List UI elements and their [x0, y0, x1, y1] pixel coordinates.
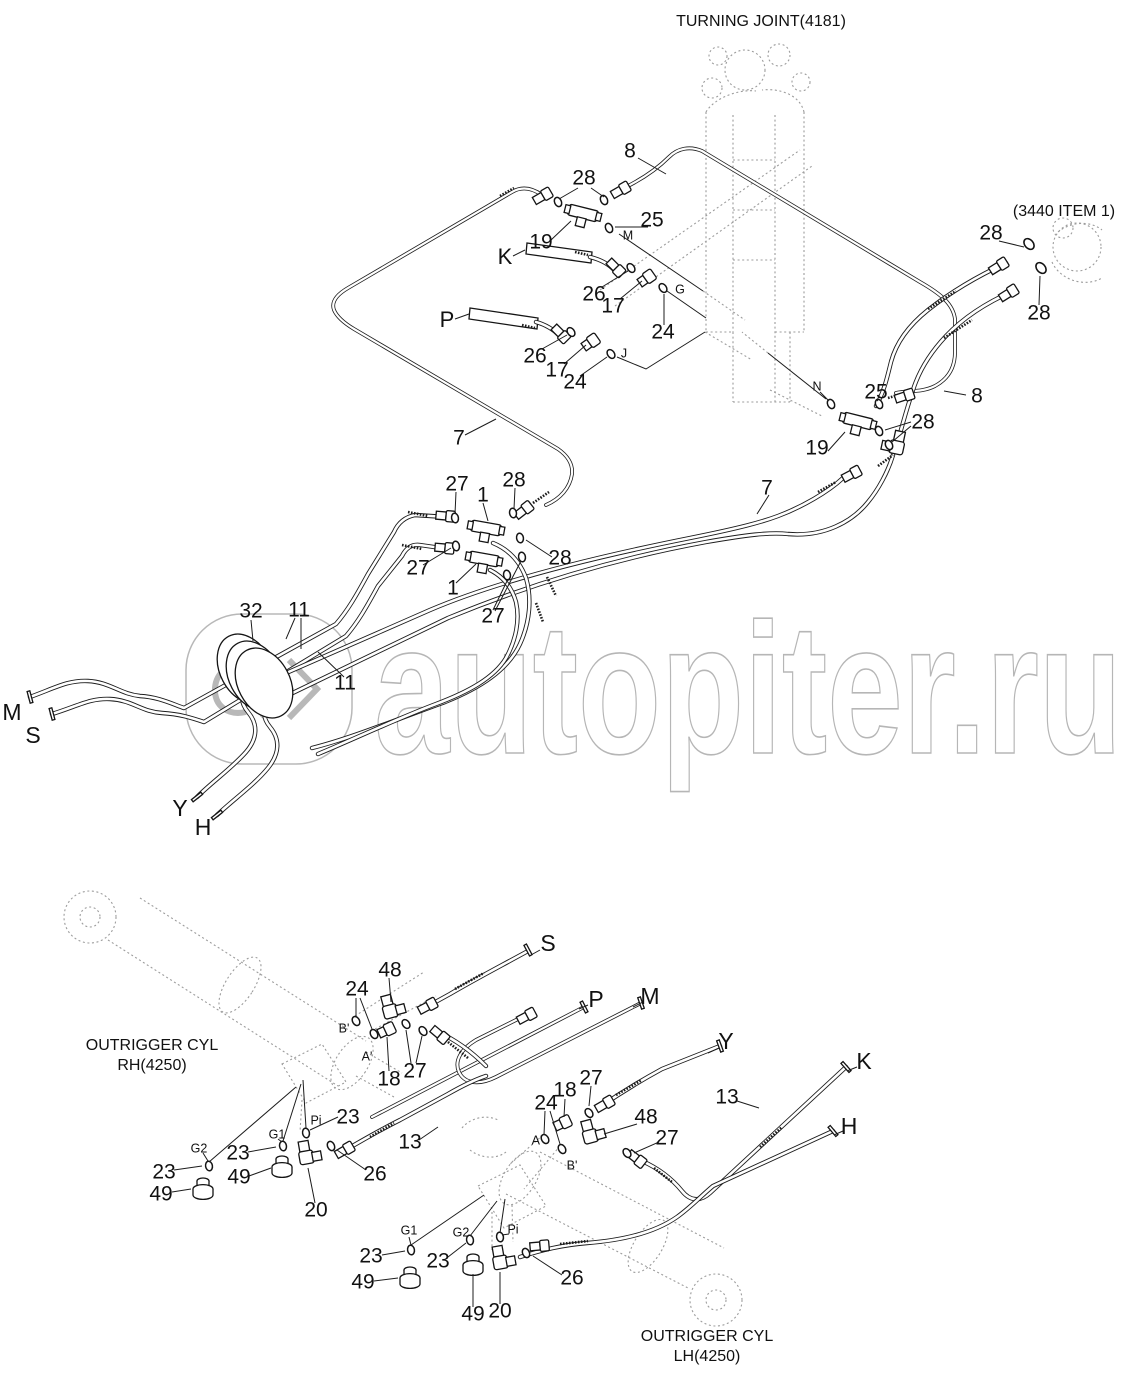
- part-number-label: 32: [239, 600, 262, 623]
- part-number-label: 27: [481, 605, 504, 628]
- part-number-label: 27: [445, 473, 468, 496]
- part-number-label: 7: [761, 477, 773, 500]
- part-number-label: 48: [378, 959, 401, 982]
- port-letter-label: J: [621, 346, 627, 360]
- part-number-label: 8: [624, 140, 636, 163]
- hydraulic-piping-diagram: autopiter.ru: [0, 0, 1128, 1380]
- plug-49: [463, 1254, 483, 1275]
- elbow-fitting-48-lh: [579, 1117, 606, 1145]
- part-number-label: 28: [502, 469, 525, 492]
- part-number-label: 24: [345, 978, 369, 1001]
- part-number-label: 49: [149, 1183, 172, 1206]
- part-number-label: 13: [715, 1086, 738, 1109]
- elbow-fitting-20-rh: [297, 1139, 323, 1165]
- port-letter-label: G: [675, 282, 685, 296]
- port-letter-label: B': [339, 1021, 350, 1035]
- hose-end-label: K: [856, 1048, 872, 1074]
- part-number-label: 25: [640, 209, 663, 232]
- port-letter-label: G1: [401, 1223, 418, 1237]
- port-letter-label: N: [812, 379, 821, 393]
- turning-joint-outline: [600, 44, 822, 416]
- outrigger-cyl-lh-outline: [462, 1117, 742, 1326]
- port-letter-label: A': [362, 1049, 373, 1063]
- part-number-label: 19: [805, 437, 828, 460]
- tee-fitting-19-left: [562, 203, 603, 231]
- port-letter-label: M: [623, 228, 633, 242]
- part-number-label: 17: [601, 295, 624, 318]
- tee-fitting-1-upper: [465, 519, 505, 545]
- hose-end-label: P: [440, 307, 455, 332]
- part-number-label: 18: [377, 1068, 400, 1091]
- part-number-label: 23: [426, 1250, 449, 1273]
- part-number-label: 23: [359, 1245, 382, 1268]
- part-number-label: 19: [529, 231, 552, 254]
- part-number-label: 49: [351, 1271, 374, 1294]
- part-number-label: 26: [523, 345, 546, 368]
- port-letter-label: G1: [269, 1127, 286, 1141]
- reference-label: (3440 ITEM 1): [1013, 203, 1115, 220]
- part-number-label: 23: [336, 1106, 359, 1129]
- part-number-label: 27: [655, 1127, 678, 1150]
- part-number-label: 24: [651, 321, 675, 344]
- part-number-label: 28: [1027, 302, 1050, 325]
- hose-end-label: H: [841, 1113, 858, 1139]
- port-letter-label: A': [532, 1133, 543, 1147]
- part-number-label: 28: [911, 411, 934, 434]
- part-number-label: 1: [447, 577, 459, 600]
- outrigger-cyl-rh-outline: [64, 891, 436, 1132]
- part-number-label: 13: [398, 1131, 421, 1154]
- part-number-label: 18: [553, 1079, 576, 1102]
- hose-end-label: Y: [718, 1028, 733, 1054]
- part-number-label: 28: [979, 222, 1002, 245]
- plug-49: [193, 1178, 213, 1199]
- nipple-17-lower: [580, 332, 601, 352]
- hose-end-label: H: [195, 814, 212, 840]
- part-number-label: 48: [634, 1106, 657, 1129]
- part-number-label: 27: [406, 557, 429, 580]
- plug-49: [400, 1267, 420, 1288]
- part-number-label: 25: [864, 381, 887, 404]
- port-letter-label: B': [567, 1158, 578, 1172]
- diagram-title: TURNING JOINT(4181): [676, 13, 846, 30]
- hose-end-label: Y: [172, 795, 187, 821]
- part-number-label: 1: [477, 484, 489, 507]
- hose-end-label: M: [2, 699, 21, 725]
- part-number-label: 49: [461, 1303, 484, 1326]
- elbow-fitting-20-lh: [491, 1244, 517, 1270]
- reference-label: LH(4250): [674, 1348, 741, 1365]
- part-number-label: 11: [334, 672, 356, 695]
- part-number-label: 24: [563, 371, 587, 394]
- part-number-label: 23: [152, 1161, 175, 1184]
- reference-label: RH(4250): [117, 1057, 186, 1074]
- nipple-17-upper: [636, 268, 657, 288]
- part-number-label: 26: [560, 1267, 583, 1290]
- nipple-18-rh: [376, 1021, 396, 1039]
- part-number-label: 11: [288, 599, 310, 622]
- item-3440-port-outline: [1052, 218, 1102, 282]
- part-number-label: 8: [971, 385, 983, 408]
- watermark: autopiter.ru: [186, 586, 1122, 793]
- elbow-fitting-48-rh: [379, 992, 406, 1020]
- port-letter-label: Pi: [310, 1113, 321, 1127]
- port-letter-label: G2: [453, 1225, 470, 1239]
- hose-end-label: P: [588, 986, 603, 1012]
- part-number-label: 26: [363, 1163, 386, 1186]
- reference-label: OUTRIGGER CYL: [641, 1328, 774, 1345]
- port-letter-label: G2: [191, 1141, 208, 1155]
- plug-49: [272, 1156, 292, 1177]
- port-letter-label: Pi: [507, 1222, 518, 1236]
- part-number-label: 23: [226, 1142, 249, 1165]
- hose-end-label: M: [640, 983, 659, 1009]
- part-number-label: 28: [548, 547, 571, 570]
- hose-end-label: S: [25, 722, 40, 748]
- part-number-label: 20: [304, 1199, 327, 1222]
- part-number-label: 27: [403, 1060, 426, 1083]
- hose-end-label: S: [540, 930, 555, 956]
- part-number-label: 27: [579, 1067, 602, 1090]
- part-number-label: 49: [227, 1166, 250, 1189]
- part-number-label: 7: [453, 427, 465, 450]
- part-number-label: 20: [488, 1300, 511, 1323]
- hose-end-label: K: [498, 244, 513, 269]
- parts-diagram-page: autopiter.ru: [0, 0, 1128, 1380]
- part-number-label: 28: [572, 167, 595, 190]
- reference-label: OUTRIGGER CYL: [86, 1037, 219, 1054]
